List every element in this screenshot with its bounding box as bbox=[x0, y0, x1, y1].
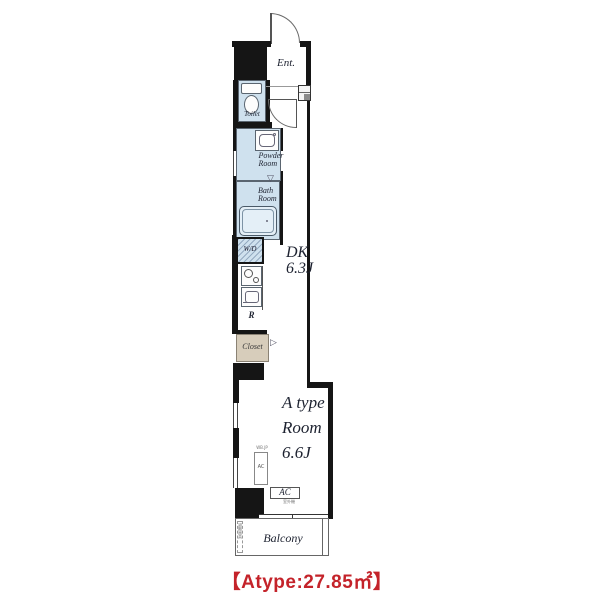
door-frame-line bbox=[296, 100, 297, 128]
bath-room-label: Bath Room bbox=[236, 187, 280, 195]
powder-room-label: Powder Room bbox=[236, 152, 281, 160]
hall-door-arc-icon bbox=[268, 100, 296, 128]
floor-plan: Ent. Toilet Powder Room ▽ Bath Room W/D … bbox=[228, 5, 340, 561]
vanity-sink-icon bbox=[255, 130, 279, 151]
wall-segment bbox=[233, 363, 239, 403]
ac-wall-note: WB.JP bbox=[252, 446, 272, 450]
window-icon bbox=[233, 458, 238, 488]
fridge-label: R bbox=[241, 311, 262, 320]
ac-outdoor-label: AC bbox=[270, 488, 300, 497]
meter-box-divider bbox=[299, 92, 310, 93]
entrance-label: Ent. bbox=[266, 58, 306, 70]
ac-wall-unit-label: AC bbox=[254, 464, 268, 470]
evacuation-hatch-note: 避難器具 bbox=[237, 521, 243, 553]
wall-segment bbox=[306, 41, 311, 86]
balcony-label: Balcony bbox=[248, 532, 318, 545]
wall-segment bbox=[234, 43, 267, 84]
entrance-door-arc-icon bbox=[270, 13, 300, 43]
wall-segment bbox=[233, 428, 239, 458]
toilet-label: Toilet bbox=[236, 111, 268, 118]
floor-plan-caption: 【Atype:27.85㎡】 bbox=[0, 567, 614, 594]
wall-segment bbox=[280, 171, 283, 245]
threshold-line bbox=[266, 86, 302, 87]
bathtub-icon bbox=[239, 206, 277, 236]
dk-label: DK 6.3J bbox=[264, 245, 308, 261]
entrance-door-leaf-icon bbox=[270, 13, 272, 44]
kitchen-sink-icon bbox=[241, 287, 262, 307]
closet-door-marker-icon: ▷ bbox=[270, 337, 277, 348]
room-label: A type Room 6.6J bbox=[240, 390, 324, 440]
stove-icon bbox=[241, 266, 262, 286]
bath-door-marker-icon: ▽ bbox=[267, 173, 274, 184]
kitchen-counter-line bbox=[262, 266, 263, 310]
window-icon bbox=[233, 403, 238, 428]
closet-label: Closet bbox=[236, 343, 269, 351]
meter-box-cell bbox=[304, 94, 310, 100]
washer-dryer-label: W/D bbox=[236, 246, 264, 253]
toilet-tank-icon bbox=[241, 83, 262, 94]
ac-outdoor-note: 室外機 bbox=[283, 500, 301, 504]
wall-segment bbox=[328, 387, 333, 519]
balcony-partition-line bbox=[322, 519, 323, 555]
wall-segment bbox=[307, 101, 310, 385]
